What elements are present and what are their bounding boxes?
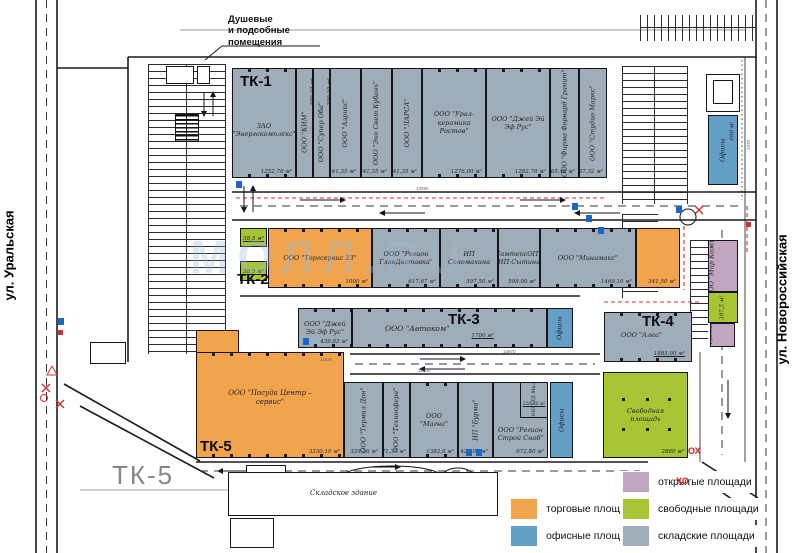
dimension-labels: 13590 11830 14970 12030 1970: [320, 139, 751, 373]
hydrant-icon: [586, 215, 592, 222]
dim-label: 14970: [503, 349, 516, 354]
dim-label: 11830: [320, 357, 333, 362]
hydrant-icon: [572, 203, 578, 210]
red-mark-oh: ОХ: [688, 446, 701, 456]
red-mark-ho: ХО: [676, 476, 689, 486]
hydrant-icon: [303, 338, 309, 345]
hydrant-icon: [236, 181, 242, 188]
sign-icon: [58, 330, 63, 335]
hydrant-icon: [598, 227, 604, 234]
site-plan: Складское здание ЗАО "Энергокомплекс" 12…: [0, 0, 800, 553]
hydrant-icon: [466, 449, 472, 456]
dim-label: 13590: [416, 186, 429, 191]
red-cross-marks: [41, 206, 704, 408]
hydrant-icon: [476, 449, 482, 456]
sign-icon: [746, 222, 751, 227]
dim-label: 1970: [746, 139, 751, 150]
hydrant-icon: [676, 206, 682, 213]
symbols-layer: ХО ОХ 13590 11830 14970 12030 1970: [0, 0, 800, 553]
roundabout: [680, 209, 696, 225]
hydrant-icon: [58, 318, 64, 325]
dim-label: 12030: [418, 368, 431, 373]
